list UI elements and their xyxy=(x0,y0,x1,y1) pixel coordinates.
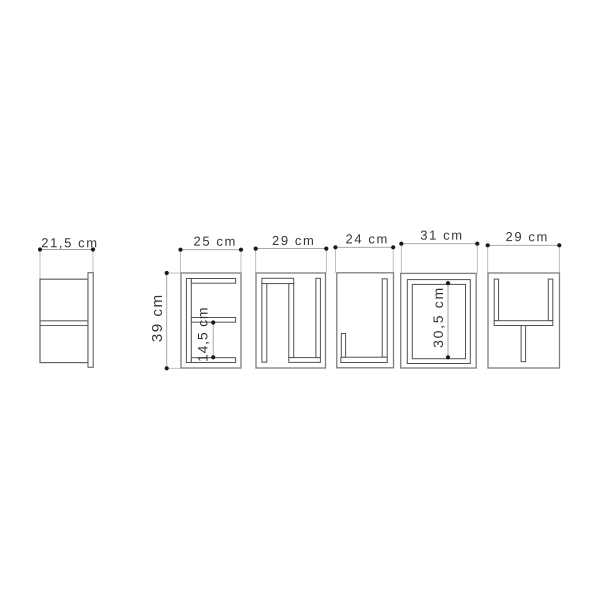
svg-text:14,5 cm: 14,5 cm xyxy=(195,307,211,362)
svg-text:24 cm: 24 cm xyxy=(345,231,388,246)
svg-text:29 cm: 29 cm xyxy=(505,229,548,244)
svg-text:30,5 cm: 30,5 cm xyxy=(430,286,446,348)
svg-text:31 cm: 31 cm xyxy=(420,228,463,243)
svg-text:29 cm: 29 cm xyxy=(272,233,315,248)
svg-text:25 cm: 25 cm xyxy=(193,234,236,249)
svg-text:39 cm: 39 cm xyxy=(149,293,166,342)
svg-text:21,5 cm: 21,5 cm xyxy=(41,235,98,250)
